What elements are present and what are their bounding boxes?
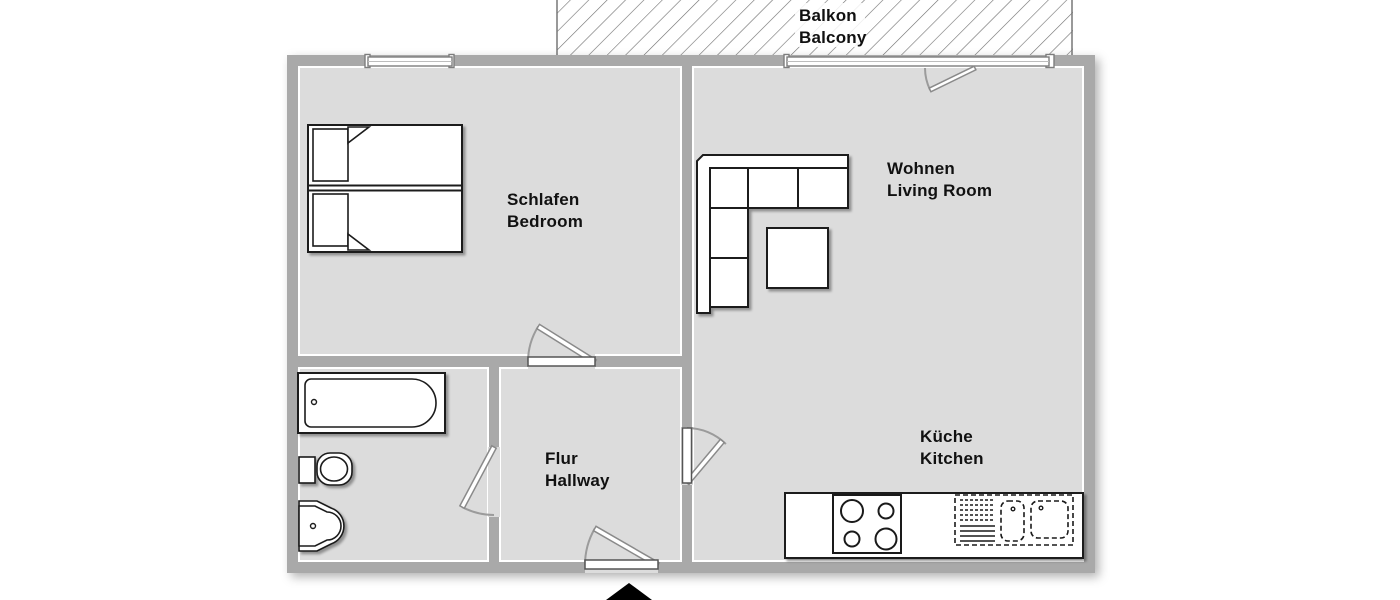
door-leaf-closed — [528, 357, 595, 366]
bathtub — [298, 373, 445, 433]
sofa-seat — [710, 208, 748, 258]
floor-plan-page: Balkon Balcony — [0, 0, 1400, 600]
sofa-seat — [748, 168, 798, 208]
bathtub-drain — [312, 400, 317, 405]
floor-plan-canvas: Balkon Balcony — [0, 0, 1400, 600]
basin-drain — [311, 524, 316, 529]
toilet-cistern — [299, 457, 315, 483]
bedroom-label-de: Schlafen — [507, 190, 579, 209]
burner — [879, 504, 894, 519]
balcony-label: Balkon Balcony — [795, 3, 867, 47]
balcony-area: Balkon Balcony — [557, 0, 1073, 60]
pillow — [313, 194, 348, 246]
living-room-floor — [693, 67, 1083, 561]
entrance-arrow-icon — [606, 583, 652, 600]
bedroom-label-en: Bedroom — [507, 212, 583, 231]
hallway-floor — [500, 368, 681, 561]
bedroom-window — [365, 55, 454, 68]
sofa-corner-seat — [710, 168, 748, 208]
kitchen-label-de: Küche — [920, 427, 973, 446]
bathtub-basin — [305, 379, 436, 427]
burner — [841, 500, 863, 522]
balcony-label-en: Balcony — [799, 28, 867, 47]
balcony-label-de: Balkon — [799, 6, 857, 25]
hallway-label-en: Hallway — [545, 471, 610, 490]
burner — [845, 532, 860, 547]
stove — [833, 495, 901, 553]
burner — [876, 529, 897, 550]
door-leaf-closed — [683, 428, 692, 483]
door-leaf-closed — [585, 560, 658, 569]
toilet-seat — [321, 457, 348, 481]
kitchen-label-en: Kitchen — [920, 449, 984, 468]
sofa-seat — [798, 168, 848, 208]
living-room-label-de: Wohnen — [887, 159, 955, 178]
coffee-table — [767, 228, 828, 288]
counter-top — [785, 493, 1083, 558]
hallway-label-de: Flur — [545, 449, 578, 468]
sofa-seat — [710, 258, 748, 307]
living-room-label-en: Living Room — [887, 181, 992, 200]
kitchen-counter — [785, 493, 1083, 558]
toilet — [299, 453, 352, 485]
pillow — [313, 129, 348, 181]
living-room-window — [784, 55, 1054, 68]
double-bed — [308, 125, 462, 252]
